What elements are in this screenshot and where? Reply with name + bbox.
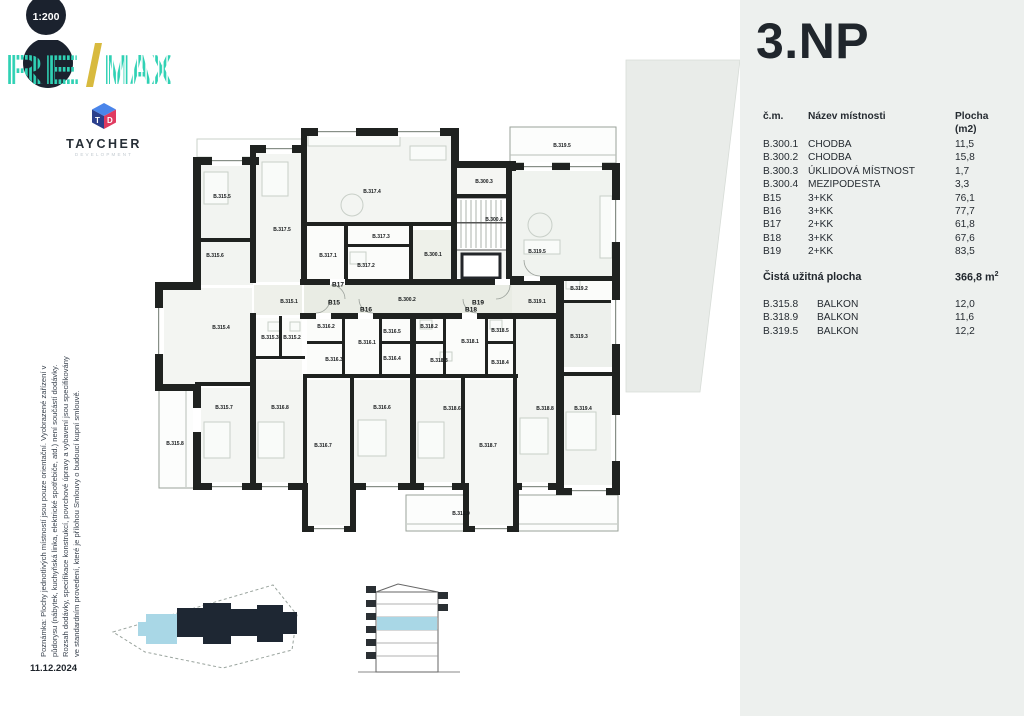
table-row: B.300.2CHODBA15,8	[763, 151, 1012, 164]
table-cell: 12,0	[955, 298, 1012, 311]
table-row: B172+KK61,8	[763, 218, 1012, 231]
remax-re: RE	[4, 46, 80, 90]
total-value: 366,8 m2	[955, 271, 1012, 284]
right-panel: 3.NP č.m. Název místnosti Plocha (m2) B.…	[740, 0, 1024, 716]
floor-plan	[130, 55, 745, 570]
table-cell: 3,3	[955, 178, 1012, 191]
highlighted-section-step	[138, 622, 146, 636]
table-row: B.319.5BALKON12,2	[763, 325, 1012, 338]
table-row: B192+KK83,5	[763, 245, 1012, 258]
section-thumbnail	[358, 578, 463, 683]
floor-title: 3.NP	[756, 12, 869, 70]
neighbor-building-mass	[626, 60, 740, 392]
area-table: B.300.1CHODBA11,5B.300.2CHODBA15,8B.300.…	[763, 138, 1012, 259]
table-row: B.300.4MEZIPODESTA3,3	[763, 178, 1012, 191]
table-header: č.m. Název místnosti Plocha (m2)	[763, 110, 1012, 137]
balcony-table: B.315.8BALKON12,0B.318.9BALKON11,6B.319.…	[763, 298, 1012, 338]
table-cell: B18	[763, 232, 808, 245]
header-name: Název místnosti	[808, 110, 955, 137]
table-cell: 11,6	[955, 311, 1012, 324]
table-cell: CHODBA	[808, 138, 955, 151]
remax-slash	[86, 43, 102, 87]
scale-value: 1:200	[33, 11, 60, 23]
table-cell: BALKON	[808, 325, 955, 338]
disclaimer-line: Poznámka: Plochy jednotlivých místností …	[38, 342, 49, 657]
highlighted-floor	[377, 617, 437, 630]
table-cell: BALKON	[808, 311, 955, 324]
stairs	[456, 198, 508, 250]
disclaimer-line: půdorysu (nábytek, kuchyňská linka, elek…	[49, 342, 60, 657]
table-cell: B.318.9	[763, 311, 808, 324]
table-cell: 67,6	[955, 232, 1012, 245]
table-cell: 77,7	[955, 205, 1012, 218]
table-row: B.300.3ÚKLIDOVÁ MÍSTNOST1,7	[763, 165, 1012, 178]
table-cell: 2+KK	[808, 245, 955, 258]
total-row: Čistá užitná plocha 366,8 m2	[763, 271, 1012, 284]
table-row: B183+KK67,6	[763, 232, 1012, 245]
table-cell: ÚKLIDOVÁ MÍSTNOST	[808, 165, 955, 178]
table-cell: 83,5	[955, 245, 1012, 258]
table-cell: 15,8	[955, 151, 1012, 164]
cube-letter-d: D	[107, 116, 113, 125]
table-row: B.300.1CHODBA11,5	[763, 138, 1012, 151]
header-cm: č.m.	[763, 110, 808, 137]
table-cell: B16	[763, 205, 808, 218]
room-fills	[161, 136, 614, 528]
table-cell: B17	[763, 218, 808, 231]
table-cell: 3+KK	[808, 205, 955, 218]
table-cell: 2+KK	[808, 218, 955, 231]
table-cell: BALKON	[808, 298, 955, 311]
disclaimer-line: ve standardním provedení, které je přílo…	[71, 342, 82, 657]
elevator	[462, 254, 500, 278]
disclaimer-note: Poznámka: Plochy jednotlivých místností …	[38, 342, 82, 657]
table-cell: B.319.5	[763, 325, 808, 338]
scale-badge: 1:200	[26, 0, 66, 35]
plan-date: 11.12.2024	[30, 663, 77, 674]
building-footprint	[177, 603, 297, 644]
table-cell: 3+KK	[808, 192, 955, 205]
table-cell: CHODBA	[808, 151, 955, 164]
header-area: Plocha (m2)	[955, 110, 1012, 137]
table-cell: B.300.3	[763, 165, 808, 178]
table-cell: B.315.8	[763, 298, 808, 311]
table-cell: 12,2	[955, 325, 1012, 338]
table-cell: B15	[763, 192, 808, 205]
disclaimer-line: Rozsah dodávky, specifikace konstrukcí, …	[60, 342, 71, 657]
table-cell: B.300.4	[763, 178, 808, 191]
cube-letter-t: T	[95, 116, 100, 125]
table-cell: 76,1	[955, 192, 1012, 205]
table-cell: 61,8	[955, 218, 1012, 231]
table-cell: MEZIPODESTA	[808, 178, 955, 191]
table-cell: 1,7	[955, 165, 1012, 178]
table-row: B.315.8BALKON12,0	[763, 298, 1012, 311]
site-plan-thumbnail	[108, 578, 308, 678]
table-row: B163+KK77,7	[763, 205, 1012, 218]
taycher-cube-icon: T D	[91, 102, 117, 130]
table-cell: B.300.1	[763, 138, 808, 151]
highlighted-section	[146, 614, 177, 644]
table-cell: 3+KK	[808, 232, 955, 245]
total-label: Čistá užitná plocha	[763, 271, 955, 284]
table-cell: B19	[763, 245, 808, 258]
table-cell: B.300.2	[763, 151, 808, 164]
table-cell: 11,5	[955, 138, 1012, 151]
table-row: B.318.9BALKON11,6	[763, 311, 1012, 324]
floorplan-sheet: { "scale_badge": "1:200", "logo": {"re":…	[0, 0, 1024, 716]
table-row: B153+KK76,1	[763, 192, 1012, 205]
